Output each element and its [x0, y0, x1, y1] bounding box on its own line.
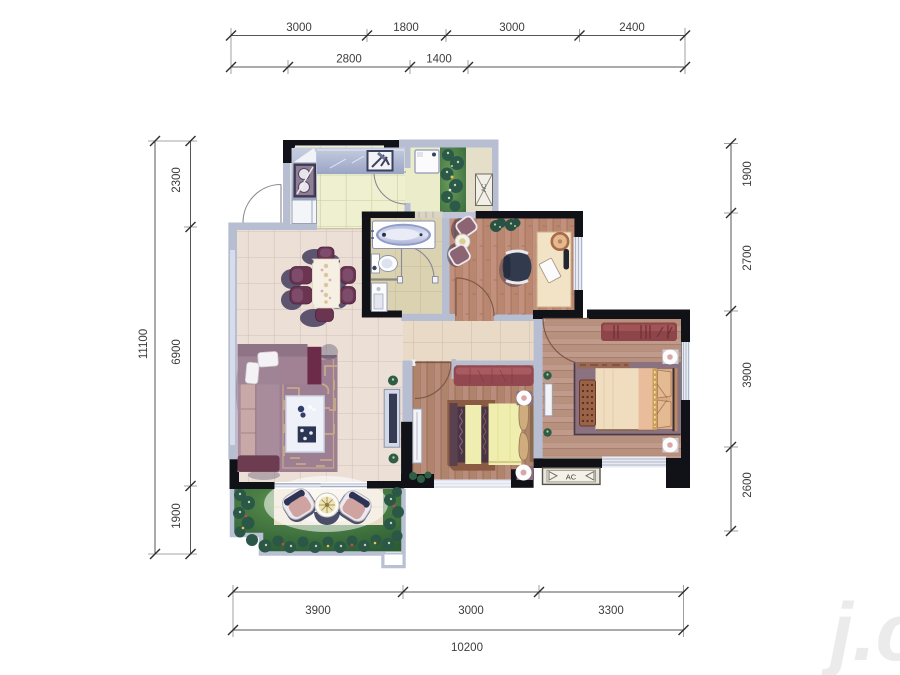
svg-text:1900: 1900 — [171, 503, 183, 529]
svg-text:j.c: j.c — [821, 587, 900, 675]
svg-text:6900: 6900 — [171, 339, 183, 365]
svg-text:3000: 3000 — [286, 22, 312, 34]
svg-text:11100: 11100 — [138, 329, 150, 359]
svg-text:AC: AC — [482, 183, 488, 192]
svg-text:1800: 1800 — [393, 22, 419, 34]
svg-text:2800: 2800 — [336, 54, 362, 66]
svg-text:3900: 3900 — [305, 605, 331, 617]
svg-text:AC: AC — [566, 473, 577, 482]
svg-text:2700: 2700 — [742, 245, 754, 271]
svg-text:1400: 1400 — [426, 54, 452, 66]
svg-text:3900: 3900 — [742, 362, 754, 388]
svg-text:3300: 3300 — [598, 605, 624, 617]
svg-text:2600: 2600 — [742, 472, 754, 498]
svg-text:2300: 2300 — [171, 167, 183, 193]
svg-text:10200: 10200 — [451, 642, 483, 654]
svg-text:2400: 2400 — [619, 22, 645, 34]
svg-text:1900: 1900 — [742, 161, 754, 187]
svg-text:3000: 3000 — [458, 605, 484, 617]
svg-text:3000: 3000 — [499, 22, 525, 34]
